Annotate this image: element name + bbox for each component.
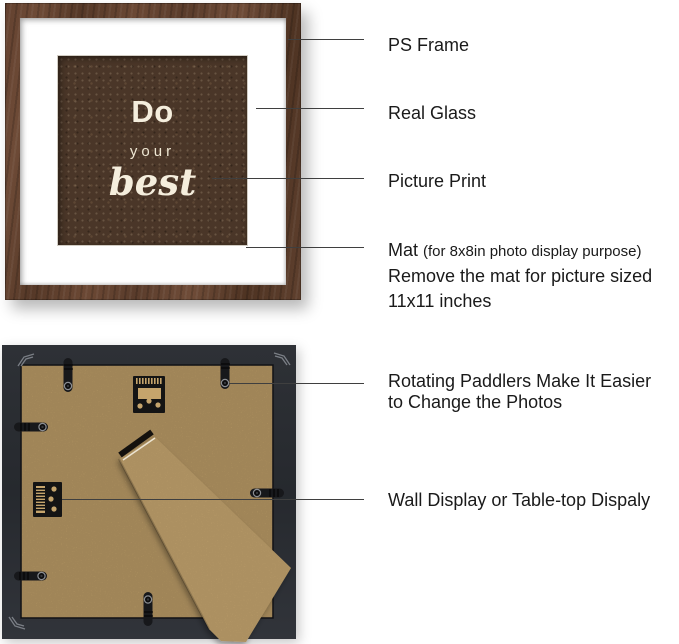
sawtooth-hanger-top [133,376,165,413]
callout-line-display [62,499,364,500]
back-view [0,340,310,644]
mat-label-title: Mat [388,240,418,260]
callout-label-ps-frame: PS Frame [388,34,469,56]
mat-label-note: (for 8x8in photo display purpose) [423,243,641,260]
front-frame: Do your best [5,3,301,300]
rotating-paddler-right [250,489,284,498]
picture-text-do: Do [58,96,247,127]
callout-line-ps-frame [288,39,364,40]
callout-line-real-glass [256,108,364,109]
sawtooth-hanger-left [33,482,62,517]
rotating-paddler-bottom-center [144,592,154,626]
rotating-paddler-bottom-left [14,572,47,581]
product-infographic: Do your best [0,0,679,644]
picture-text-your: your [58,144,247,159]
paddlers-label-line2: to Change the Photos [388,392,651,413]
callout-line-picture-print [212,178,364,179]
callout-label-paddlers: Rotating Paddlers Make It Easier to Chan… [388,371,651,413]
rotating-paddler-top-right [221,358,231,389]
rotating-paddler-left [14,423,48,432]
callout-line-paddlers [229,383,364,384]
callout-label-real-glass: Real Glass [388,102,476,124]
callout-label-picture-print: Picture Print [388,170,486,192]
rotating-paddler-top-left [64,358,74,392]
callout-label-display: Wall Display or Table-top Dispaly [388,489,650,511]
callout-label-mat: Mat(for 8x8in photo display purpose) Rem… [388,238,652,314]
mat-label-line2: Remove the mat for picture sized [388,264,652,289]
mat-label-line3: 11x11 inches [388,289,652,314]
mat-board: Do your best [20,18,286,285]
callout-line-mat [246,247,364,248]
mat-label-line1: Mat(for 8x8in photo display purpose) [388,238,652,264]
picture-print: Do your best [58,56,247,245]
paddlers-label-line1: Rotating Paddlers Make It Easier [388,371,651,392]
picture-text-best: best [58,164,247,201]
